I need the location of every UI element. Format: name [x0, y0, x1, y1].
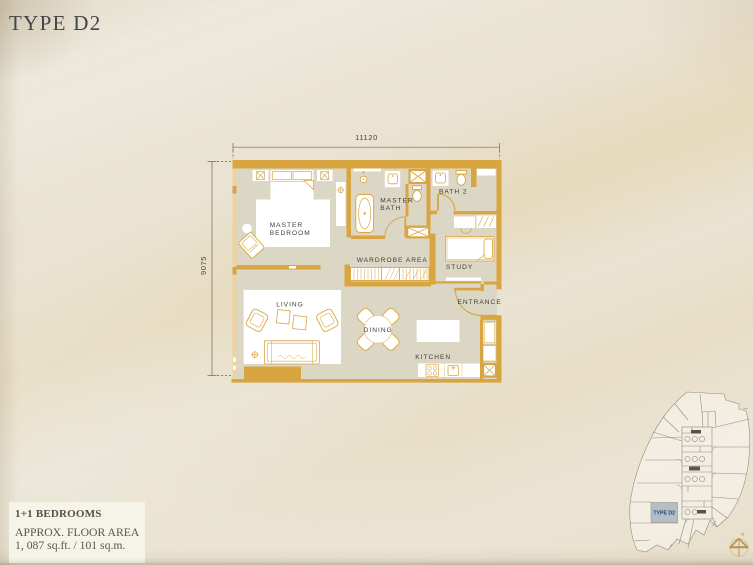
svg-text:STUDY: STUDY: [446, 264, 473, 271]
svg-text:11120: 11120: [355, 133, 378, 142]
svg-text:WARDROBE AREA: WARDROBE AREA: [357, 257, 428, 264]
svg-text:9075: 9075: [199, 256, 208, 275]
svg-text:✕: ✕: [741, 532, 745, 538]
svg-text:LIVING: LIVING: [276, 301, 304, 308]
svg-text:DINING: DINING: [364, 327, 393, 334]
svg-text:MASTER: MASTER: [380, 197, 413, 204]
svg-text:ENTRANCE: ENTRANCE: [457, 299, 501, 306]
svg-text:BATH 2: BATH 2: [439, 188, 468, 195]
svg-text:KITCHEN: KITCHEN: [415, 354, 451, 361]
svg-text:TYPE D2: TYPE D2: [653, 511, 675, 517]
svg-text:BATH: BATH: [380, 205, 401, 212]
svg-text:BEDROOM: BEDROOM: [270, 230, 311, 237]
svg-text:MASTER: MASTER: [270, 222, 303, 229]
